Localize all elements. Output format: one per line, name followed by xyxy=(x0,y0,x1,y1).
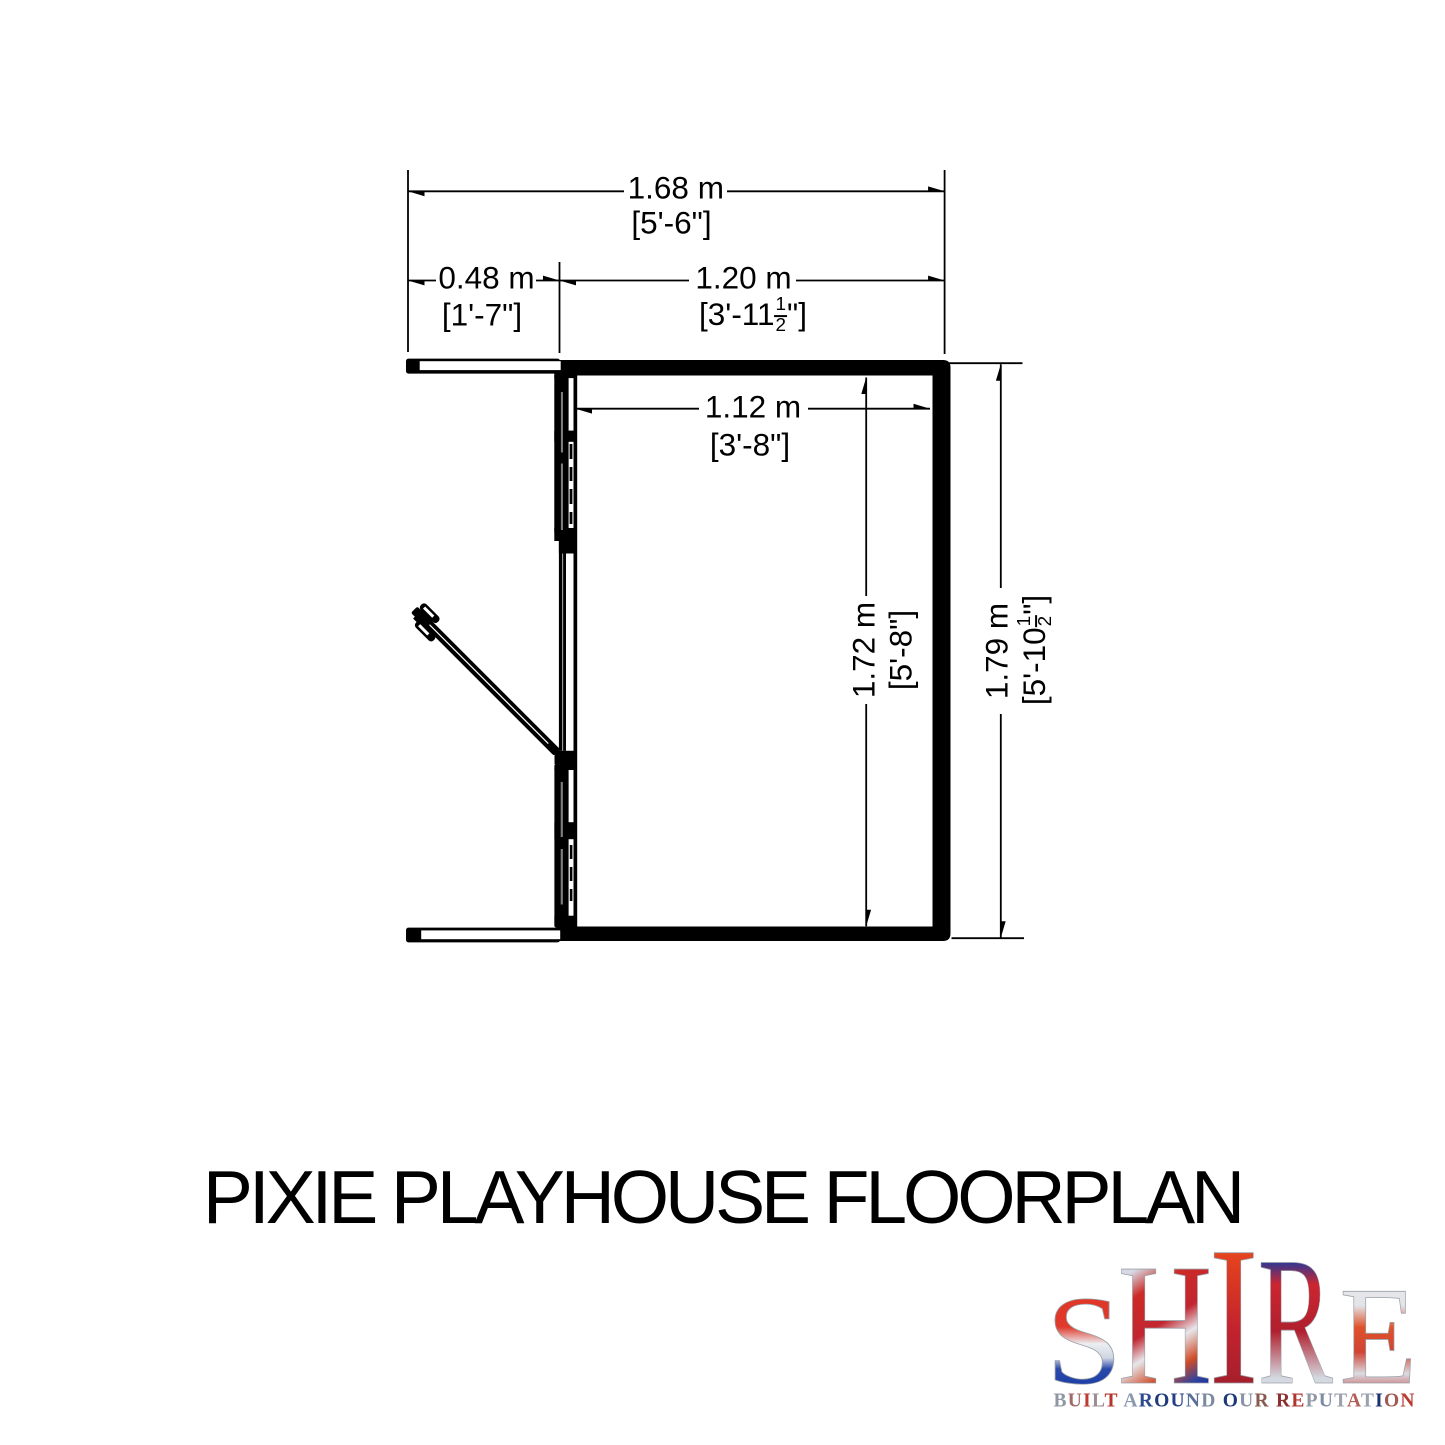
svg-text:BUILT AROUND OUR REPUTATION: BUILT AROUND OUR REPUTATION xyxy=(1054,1391,1415,1412)
